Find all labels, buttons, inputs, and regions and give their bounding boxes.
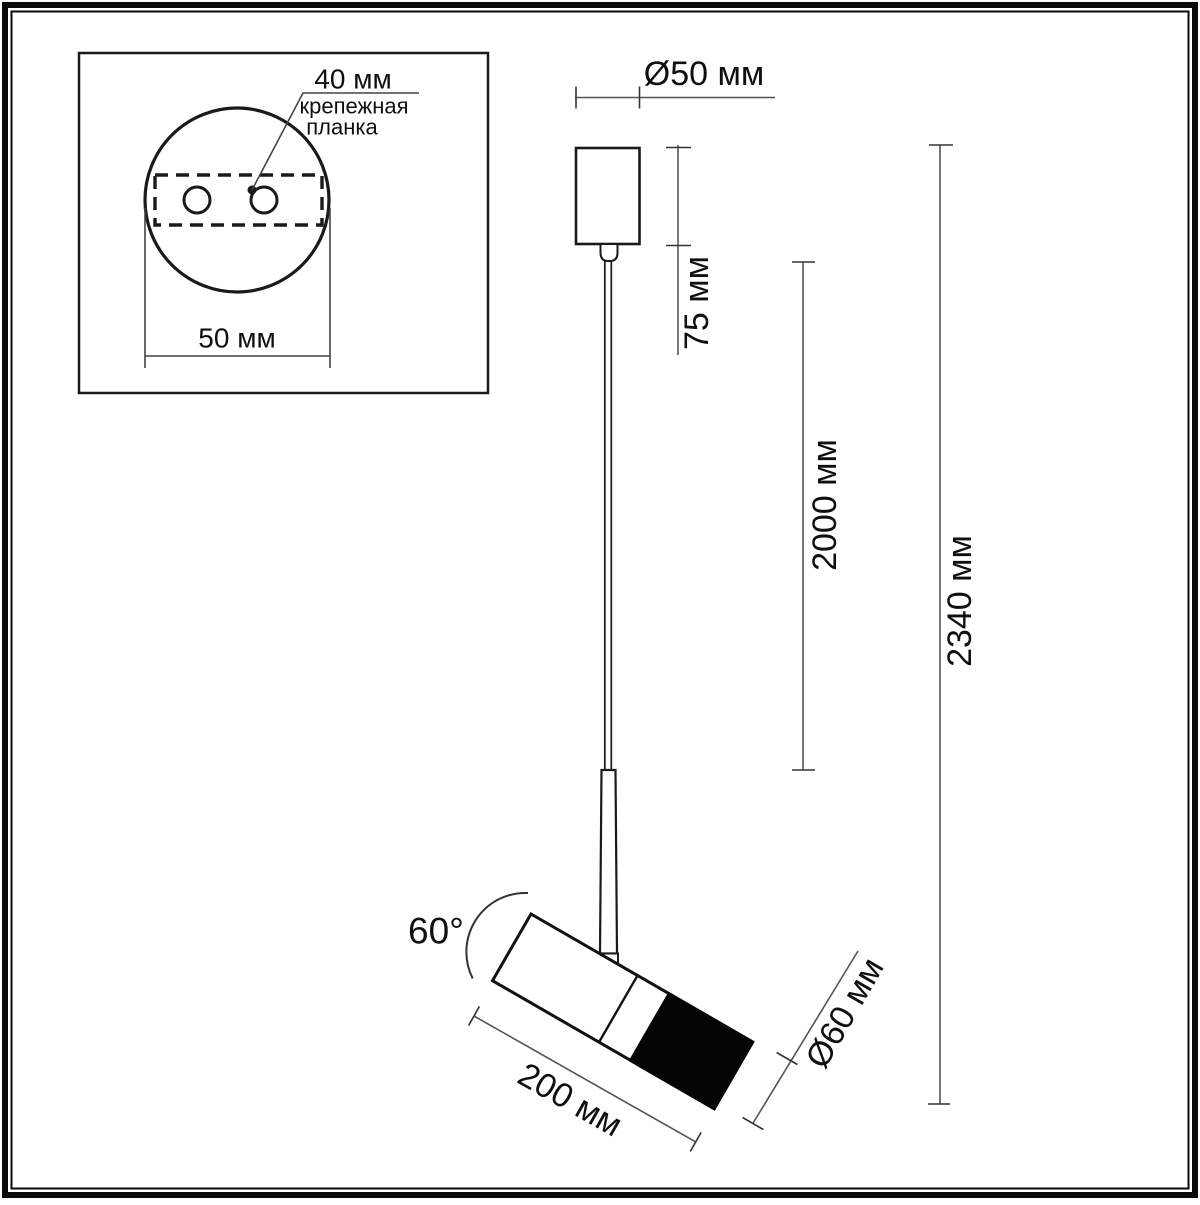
cable-gland [601, 244, 618, 261]
head-length-tick-end [690, 1132, 701, 1151]
cable-length-label: 2000 мм [806, 439, 844, 571]
canopy-height-label: 75 мм [678, 256, 716, 350]
head-diameter-label: Ø60 мм [798, 951, 891, 1074]
pendant-light-dimension-drawing: 40 мм крепежная планка 50 мм 60° [0, 0, 1200, 1200]
ceiling-canopy [576, 148, 640, 244]
total-height-label: 2340 мм [941, 535, 979, 667]
drawing-page: 40 мм крепежная планка 50 мм 60° [0, 0, 1200, 1200]
inset-width-label: 50 мм [198, 323, 275, 354]
head-length-tick-start [469, 1006, 480, 1025]
canopy-top-view-inset: 40 мм крепежная планка 50 мм [79, 53, 488, 393]
mounting-hole-left [184, 187, 210, 213]
hole-spacing-label: 40 мм [314, 64, 391, 95]
canopy-diameter-label: Ø50 мм [644, 55, 764, 93]
stem [600, 770, 617, 954]
head-length-label: 200 мм [512, 1056, 629, 1145]
tilt-angle-label: 60° [408, 911, 464, 952]
canopy-circle-top-view [145, 108, 329, 292]
head-diameter-tick-bottom [743, 1118, 764, 1130]
mounting-plate-label-line2: планка [306, 115, 378, 140]
